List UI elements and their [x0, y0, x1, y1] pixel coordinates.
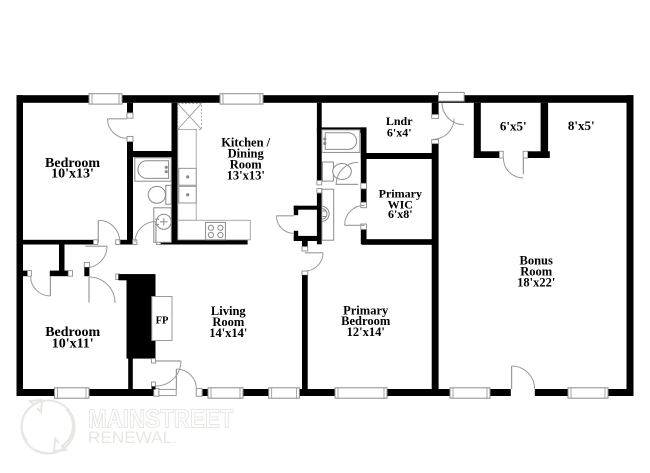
- svg-text:RENEWAL.: RENEWAL.: [88, 429, 177, 447]
- svg-text:13'x13': 13'x13': [227, 168, 265, 182]
- svg-text:10'x11': 10'x11': [52, 337, 94, 352]
- svg-text:14'x14': 14'x14': [209, 326, 247, 340]
- svg-text:8'x5': 8'x5': [568, 118, 595, 133]
- svg-text:FP: FP: [156, 316, 169, 327]
- svg-text:10'x13': 10'x13': [51, 167, 94, 182]
- svg-text:18'x22': 18'x22': [517, 276, 555, 290]
- svg-text:6'x8': 6'x8': [388, 207, 413, 221]
- svg-text:12'x14': 12'x14': [347, 325, 385, 339]
- svg-text:6'x4': 6'x4': [387, 125, 412, 139]
- svg-text:6'x5': 6'x5': [500, 118, 527, 133]
